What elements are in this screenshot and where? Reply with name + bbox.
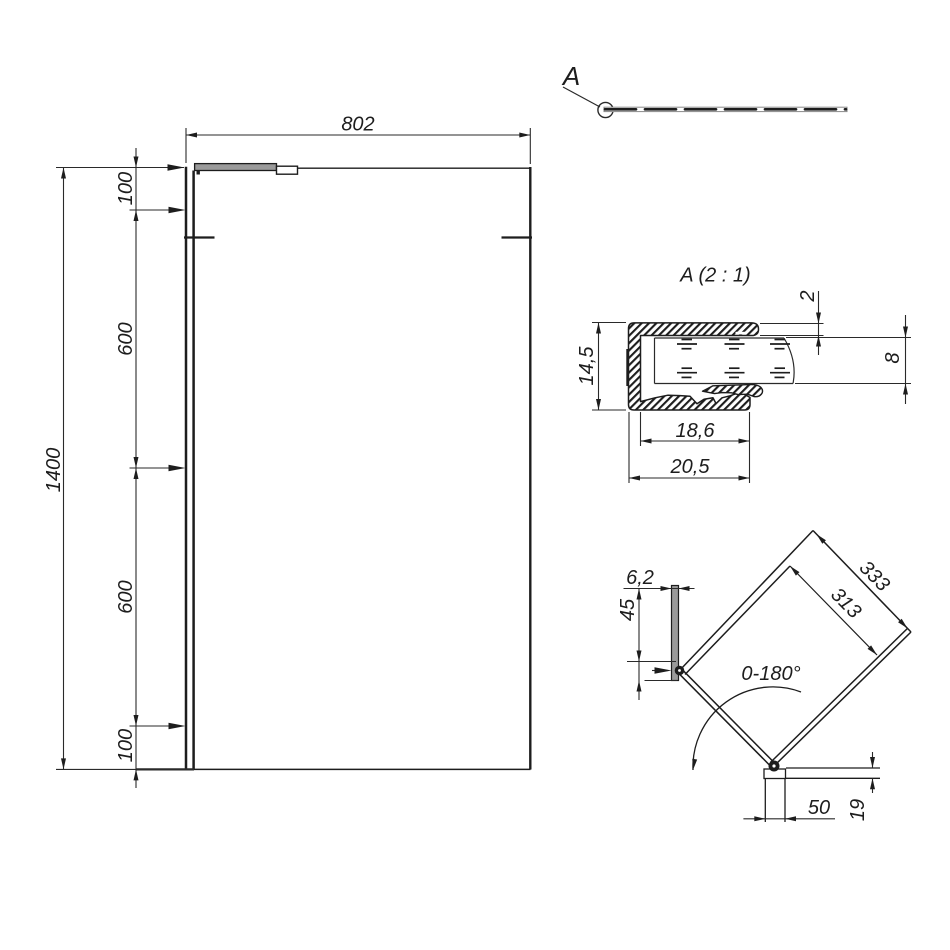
svg-text:2: 2 — [797, 290, 819, 302]
svg-text:600: 600 — [115, 322, 137, 355]
svg-text:18,6: 18,6 — [676, 420, 716, 442]
svg-text:45: 45 — [617, 598, 639, 621]
svg-text:8: 8 — [882, 352, 904, 363]
svg-text:14,5: 14,5 — [576, 346, 598, 386]
svg-text:802: 802 — [341, 114, 374, 136]
svg-text:6,2: 6,2 — [626, 567, 654, 589]
svg-text:1400: 1400 — [43, 448, 65, 493]
svg-text:20,5: 20,5 — [670, 456, 711, 478]
svg-text:50: 50 — [808, 797, 830, 819]
svg-text:100: 100 — [115, 729, 137, 762]
svg-text:600: 600 — [115, 580, 137, 613]
svg-text:19: 19 — [847, 799, 869, 821]
svg-text:0-180°: 0-180° — [741, 663, 800, 685]
svg-text:A: A — [561, 61, 580, 91]
svg-text:100: 100 — [115, 172, 137, 205]
svg-text:A (2 : 1): A (2 : 1) — [679, 265, 750, 287]
